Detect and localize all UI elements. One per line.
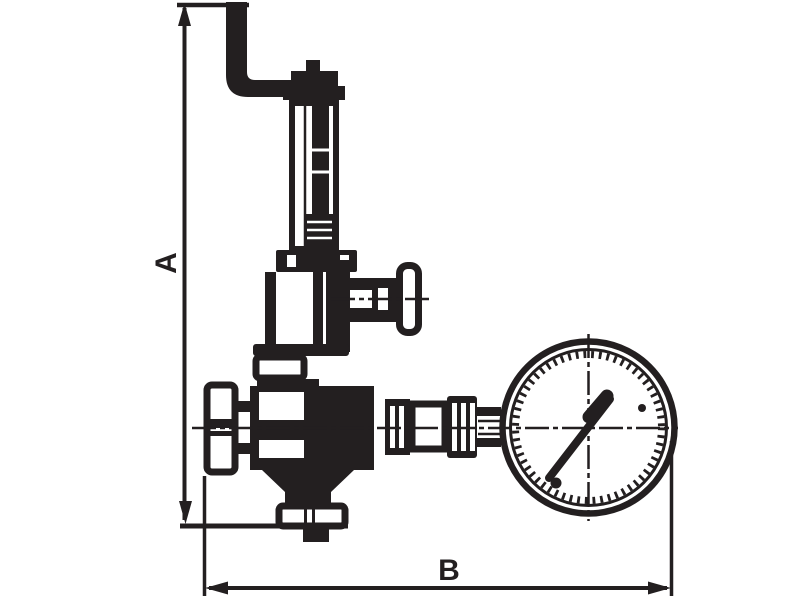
- dimension-b-arrow-left-icon: [205, 582, 228, 595]
- dimension-a-label: A: [150, 252, 183, 274]
- bottom-outlet-flange: [279, 506, 345, 542]
- dimension-a-arrow-down-icon: [179, 501, 192, 524]
- inlet-stem-bottom: [235, 443, 251, 454]
- cap-band: [291, 71, 338, 86]
- outlet-stub: [303, 527, 329, 542]
- valve-technical-drawing: A: [0, 0, 800, 598]
- dimension-b-label: B: [438, 554, 460, 587]
- packing-hex: [256, 357, 304, 378]
- nipple-bottom: [477, 438, 501, 447]
- dimension-b-arrow-right-icon: [648, 582, 671, 595]
- needle-counterweight: [551, 478, 562, 489]
- stem-tube-wall: [313, 272, 323, 350]
- bonnet-yoke: [265, 260, 350, 352]
- body-window-upper: [259, 392, 304, 420]
- body-skirt: [262, 470, 354, 492]
- flange-slot: [287, 255, 296, 267]
- inlet-stem-top: [235, 401, 251, 412]
- vent-pipe-elbow: [226, 2, 293, 97]
- cap-and-nipple: [283, 60, 345, 100]
- valve-technical-drawing-canvas: A: [0, 0, 800, 598]
- inlet-nut-band: [206, 431, 236, 436]
- cap-flange: [283, 86, 345, 100]
- nipple-top: [477, 407, 501, 416]
- coupling-sleeve: [412, 404, 445, 449]
- body-window-lower: [259, 440, 304, 458]
- yoke-left-leg: [265, 272, 276, 350]
- dial-marker-dot: [638, 404, 646, 412]
- body-band: [257, 379, 319, 386]
- spring-housing: [292, 103, 336, 249]
- valve-body: [250, 344, 374, 505]
- inlet-nut-band: [206, 419, 236, 428]
